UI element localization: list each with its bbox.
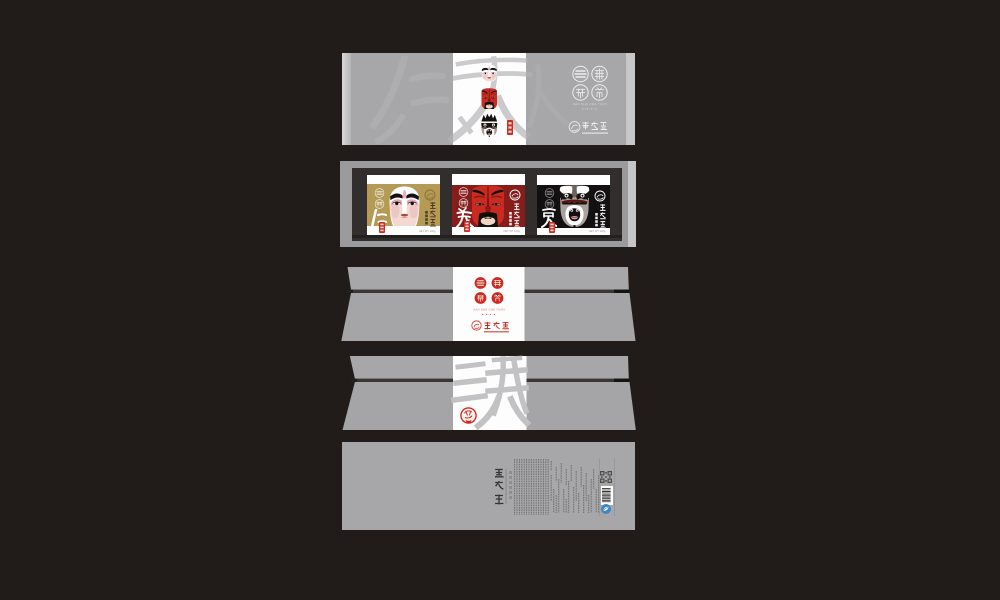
- svg-text:SAN SHU CHA YUAN: SAN SHU CHA YUAN: [473, 307, 505, 311]
- svg-text:▪·▪·▪·▪: ▪·▪·▪·▪: [482, 312, 495, 316]
